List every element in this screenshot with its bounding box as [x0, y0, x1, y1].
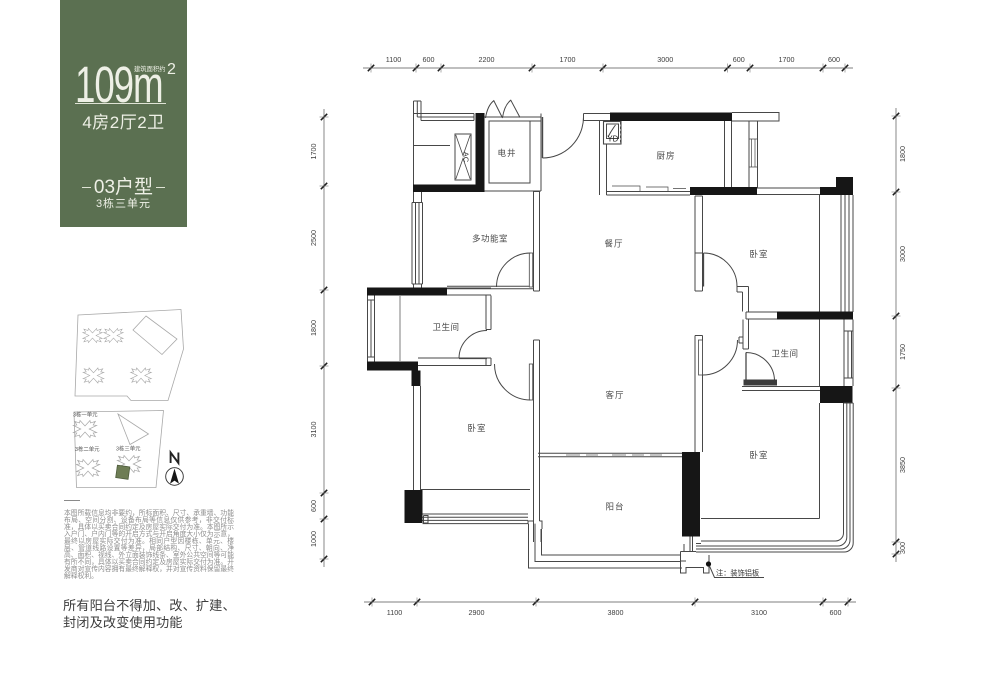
svg-text:YD: YD [607, 135, 618, 144]
svg-text:1700: 1700 [779, 55, 795, 64]
svg-text:客厅: 客厅 [605, 390, 624, 400]
svg-text:多功能室: 多功能室 [472, 234, 508, 244]
svg-text:3000: 3000 [898, 246, 907, 262]
svg-text:卫生间: 卫生间 [771, 349, 798, 359]
svg-text:3栋三单元: 3栋三单元 [116, 445, 141, 453]
svg-text:600: 600 [423, 55, 435, 64]
svg-text:1100: 1100 [387, 608, 402, 617]
svg-text:600: 600 [733, 55, 745, 64]
svg-text:厨房: 厨房 [656, 151, 675, 161]
svg-text:1800: 1800 [898, 146, 907, 162]
svg-text:卫生间: 卫生间 [432, 322, 459, 332]
svg-text:卧室: 卧室 [467, 423, 486, 433]
svg-text:2900: 2900 [469, 608, 485, 617]
svg-text:3850: 3850 [898, 457, 907, 473]
svg-text:电井: 电井 [497, 148, 516, 158]
svg-text:2200: 2200 [479, 55, 495, 64]
svg-text:3100: 3100 [309, 422, 318, 438]
svg-text:1700: 1700 [309, 144, 318, 160]
svg-text:1800: 1800 [309, 320, 318, 336]
svg-text:1750: 1750 [898, 344, 907, 360]
svg-text:注：装饰铝板: 注：装饰铝板 [716, 569, 759, 578]
svg-text:1700: 1700 [560, 55, 576, 64]
svg-text:3800: 3800 [608, 608, 624, 617]
svg-text:卧室: 卧室 [749, 450, 768, 460]
svg-text:3100: 3100 [751, 608, 767, 617]
svg-text:600: 600 [309, 500, 318, 512]
svg-text:300: 300 [898, 542, 907, 554]
svg-text:阳台: 阳台 [605, 502, 624, 512]
svg-text:3栋一单元: 3栋一单元 [73, 411, 98, 419]
svg-text:3栋二单元: 3栋二单元 [75, 445, 100, 453]
svg-text:600: 600 [830, 608, 842, 617]
svg-text:600: 600 [828, 55, 840, 64]
svg-text:餐厅: 餐厅 [604, 239, 623, 249]
svg-text:卧室: 卧室 [749, 249, 768, 259]
svg-text:2500: 2500 [309, 230, 318, 246]
svg-text:1000: 1000 [309, 531, 318, 547]
svg-text:AC: AC [462, 152, 471, 163]
svg-text:1100: 1100 [386, 55, 401, 64]
svg-text:3000: 3000 [657, 55, 673, 64]
